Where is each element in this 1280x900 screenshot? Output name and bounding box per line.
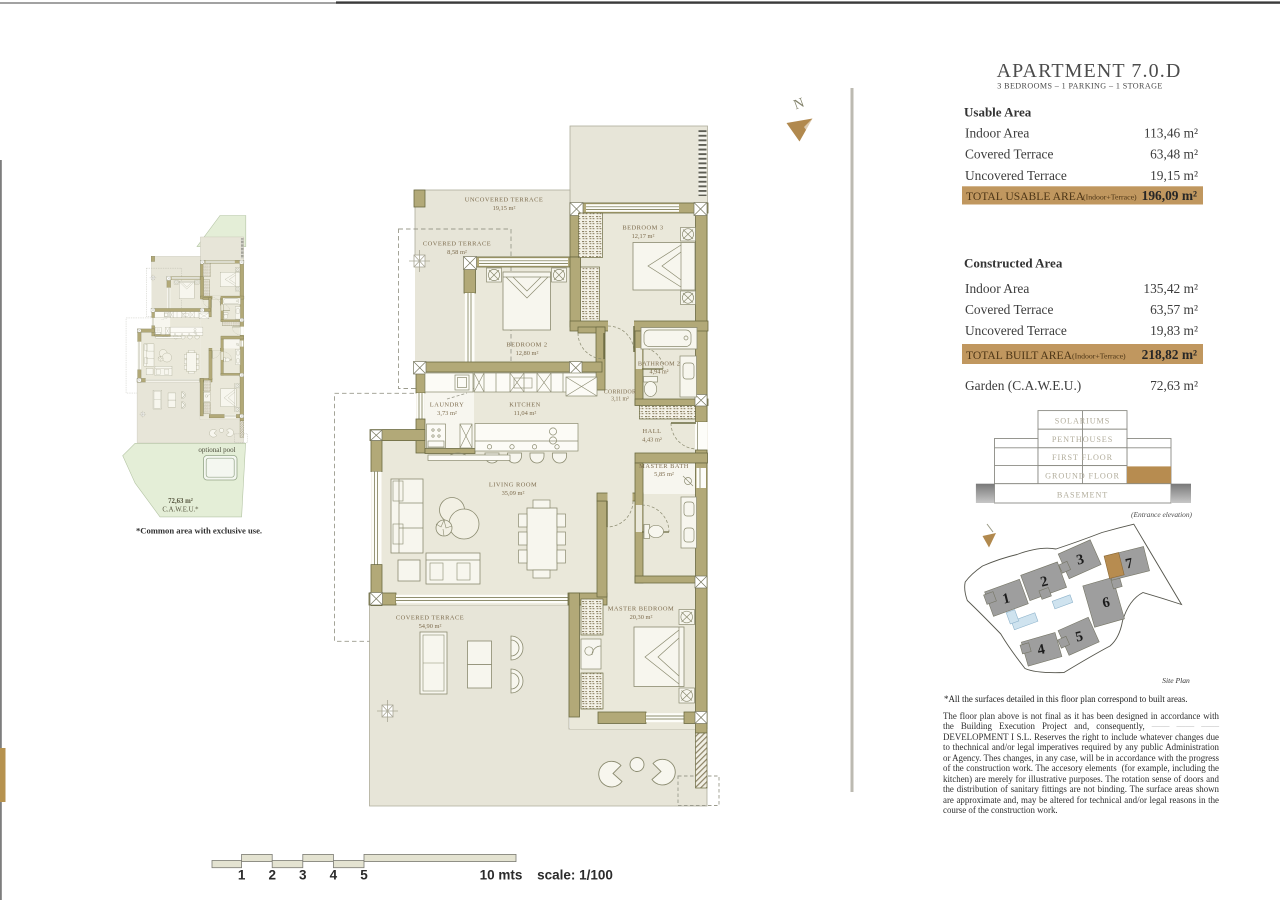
svg-text:Covered Terrace: Covered Terrace	[965, 147, 1053, 162]
svg-text:19,15 m²: 19,15 m²	[493, 205, 516, 212]
svg-text:COVERED TERRACE: COVERED TERRACE	[423, 241, 491, 248]
svg-text:C.A.W.E.U.*: C.A.W.E.U.*	[162, 507, 199, 514]
svg-text:10 mts: 10 mts	[480, 868, 523, 883]
svg-text:optional pool: optional pool	[198, 446, 235, 454]
svg-text:BEDROOM 2: BEDROOM 2	[506, 342, 547, 349]
svg-text:MASTER BATH: MASTER BATH	[639, 463, 689, 470]
svg-text:COVERED TERRACE: COVERED TERRACE	[396, 615, 464, 622]
svg-text:4,43 m²: 4,43 m²	[642, 437, 662, 444]
svg-text:4,94 m²: 4,94 m²	[649, 369, 668, 376]
svg-text:218,82 m²: 218,82 m²	[1142, 347, 1197, 362]
svg-text:GROUND FLOOR: GROUND FLOOR	[1045, 472, 1120, 481]
svg-text:N: N	[792, 96, 807, 114]
svg-text:113,46 m²: 113,46 m²	[1144, 126, 1198, 141]
svg-text:KITCHEN: KITCHEN	[509, 402, 541, 409]
svg-text:72,63 m²: 72,63 m²	[1150, 378, 1198, 393]
svg-text:SOLARIUMS: SOLARIUMS	[1055, 417, 1110, 426]
svg-text:72,63 m²: 72,63 m²	[168, 498, 193, 505]
svg-text:BEDROOM 3: BEDROOM 3	[622, 225, 663, 232]
svg-text:20,30 m²: 20,30 m²	[630, 614, 653, 621]
svg-text:3,73 m²: 3,73 m²	[437, 410, 457, 417]
svg-text:(Indoor+Terrace): (Indoor+Terrace)	[1083, 192, 1137, 201]
svg-text:scale: 1/100: scale: 1/100	[537, 868, 613, 883]
svg-text:196,09 m²: 196,09 m²	[1142, 188, 1197, 203]
svg-text:PENTHOUSES: PENTHOUSES	[1052, 435, 1113, 444]
svg-text:Constructed Area: Constructed Area	[964, 256, 1063, 271]
svg-text:3,11 m²: 3,11 m²	[611, 397, 629, 403]
svg-text:LAUNDRY: LAUNDRY	[430, 402, 464, 409]
svg-text:63,48 m²: 63,48 m²	[1150, 147, 1198, 162]
svg-text:BASEMENT: BASEMENT	[1057, 491, 1108, 500]
svg-text:Garden (C.A.W.E.U.): Garden (C.A.W.E.U.)	[965, 378, 1081, 393]
svg-text:2: 2	[268, 868, 276, 883]
svg-text:3: 3	[299, 868, 307, 883]
svg-text:TOTAL BUILT AREA: TOTAL BUILT AREA	[966, 349, 1073, 362]
svg-text:54,90 m²: 54,90 m²	[419, 623, 442, 630]
svg-text:Indoor Area: Indoor Area	[965, 126, 1029, 141]
svg-text:UNCOVERED TERRACE: UNCOVERED TERRACE	[465, 197, 544, 204]
svg-text:CORRIDOR: CORRIDOR	[604, 390, 636, 396]
svg-text:Usable Area: Usable Area	[964, 105, 1032, 120]
svg-text:*Common area with exclusive us: *Common area with exclusive use.	[136, 526, 262, 536]
svg-text:1: 1	[238, 868, 246, 883]
svg-text:TOTAL USABLE AREA: TOTAL USABLE AREA	[966, 190, 1085, 203]
svg-text:(Entrance elevation): (Entrance elevation)	[1131, 510, 1192, 519]
svg-text:12,80 m²: 12,80 m²	[516, 350, 539, 357]
svg-text:19,83 m²: 19,83 m²	[1150, 323, 1198, 338]
svg-text:5,85 m²: 5,85 m²	[654, 471, 674, 478]
svg-text:4: 4	[330, 868, 338, 883]
svg-text:(Indoor+Terrace): (Indoor+Terrace)	[1072, 352, 1126, 361]
svg-text:35,09 m²: 35,09 m²	[502, 490, 525, 497]
svg-text:5: 5	[360, 868, 368, 883]
svg-text:19,15 m²: 19,15 m²	[1150, 168, 1198, 183]
svg-text:Uncovered Terrace: Uncovered Terrace	[965, 323, 1067, 338]
svg-text:8,58 m²: 8,58 m²	[447, 249, 467, 256]
svg-text:APARTMENT 7.0.D: APARTMENT 7.0.D	[997, 60, 1182, 82]
svg-text:135,42 m²: 135,42 m²	[1143, 281, 1198, 296]
svg-text:3 BEDROOMS – 1 PARKING – 1 STO: 3 BEDROOMS – 1 PARKING – 1 STORAGE	[997, 82, 1162, 91]
svg-text:Uncovered Terrace: Uncovered Terrace	[965, 168, 1067, 183]
svg-text:12,17 m²: 12,17 m²	[632, 233, 655, 240]
svg-text:11,04 m²: 11,04 m²	[514, 410, 537, 417]
svg-text:Indoor Area: Indoor Area	[965, 281, 1029, 296]
svg-text:HALL: HALL	[642, 428, 661, 435]
svg-text:Site Plan: Site Plan	[1162, 676, 1190, 685]
svg-text:MASTER BEDROOM: MASTER BEDROOM	[608, 606, 674, 613]
svg-text:Covered Terrace: Covered Terrace	[965, 302, 1053, 317]
svg-text:FIRST FLOOR: FIRST FLOOR	[1052, 453, 1113, 462]
svg-text:63,57 m²: 63,57 m²	[1150, 302, 1198, 317]
svg-text:BATHROOM 2: BATHROOM 2	[638, 361, 680, 368]
svg-text:LIVING ROOM: LIVING ROOM	[489, 482, 537, 489]
